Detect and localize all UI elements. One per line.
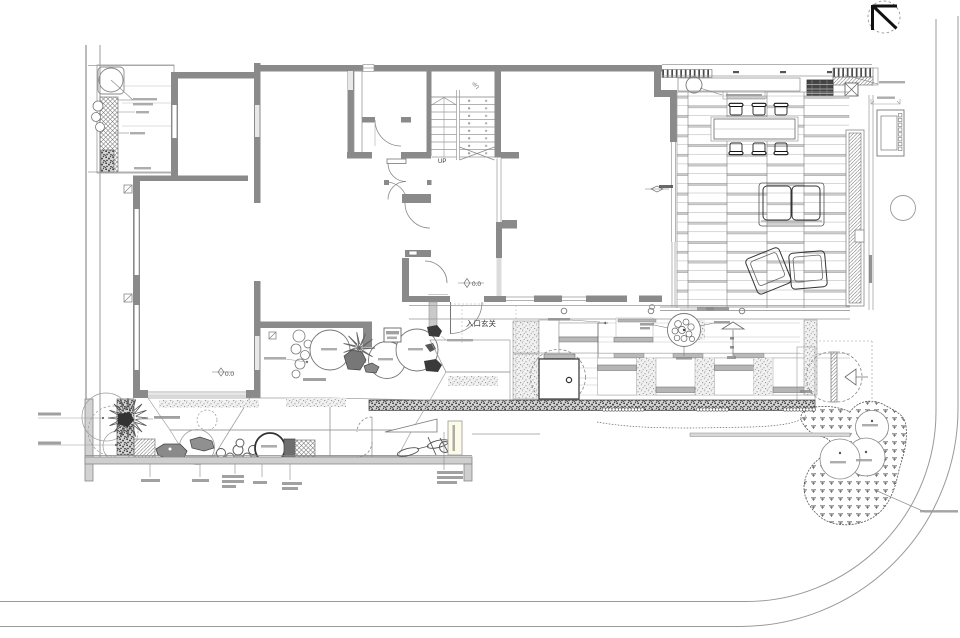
svg-text:入口玄关: 入口玄关	[466, 318, 496, 328]
svg-text:UP: UP	[438, 159, 446, 165]
svg-text:0.0: 0.0	[472, 281, 481, 288]
